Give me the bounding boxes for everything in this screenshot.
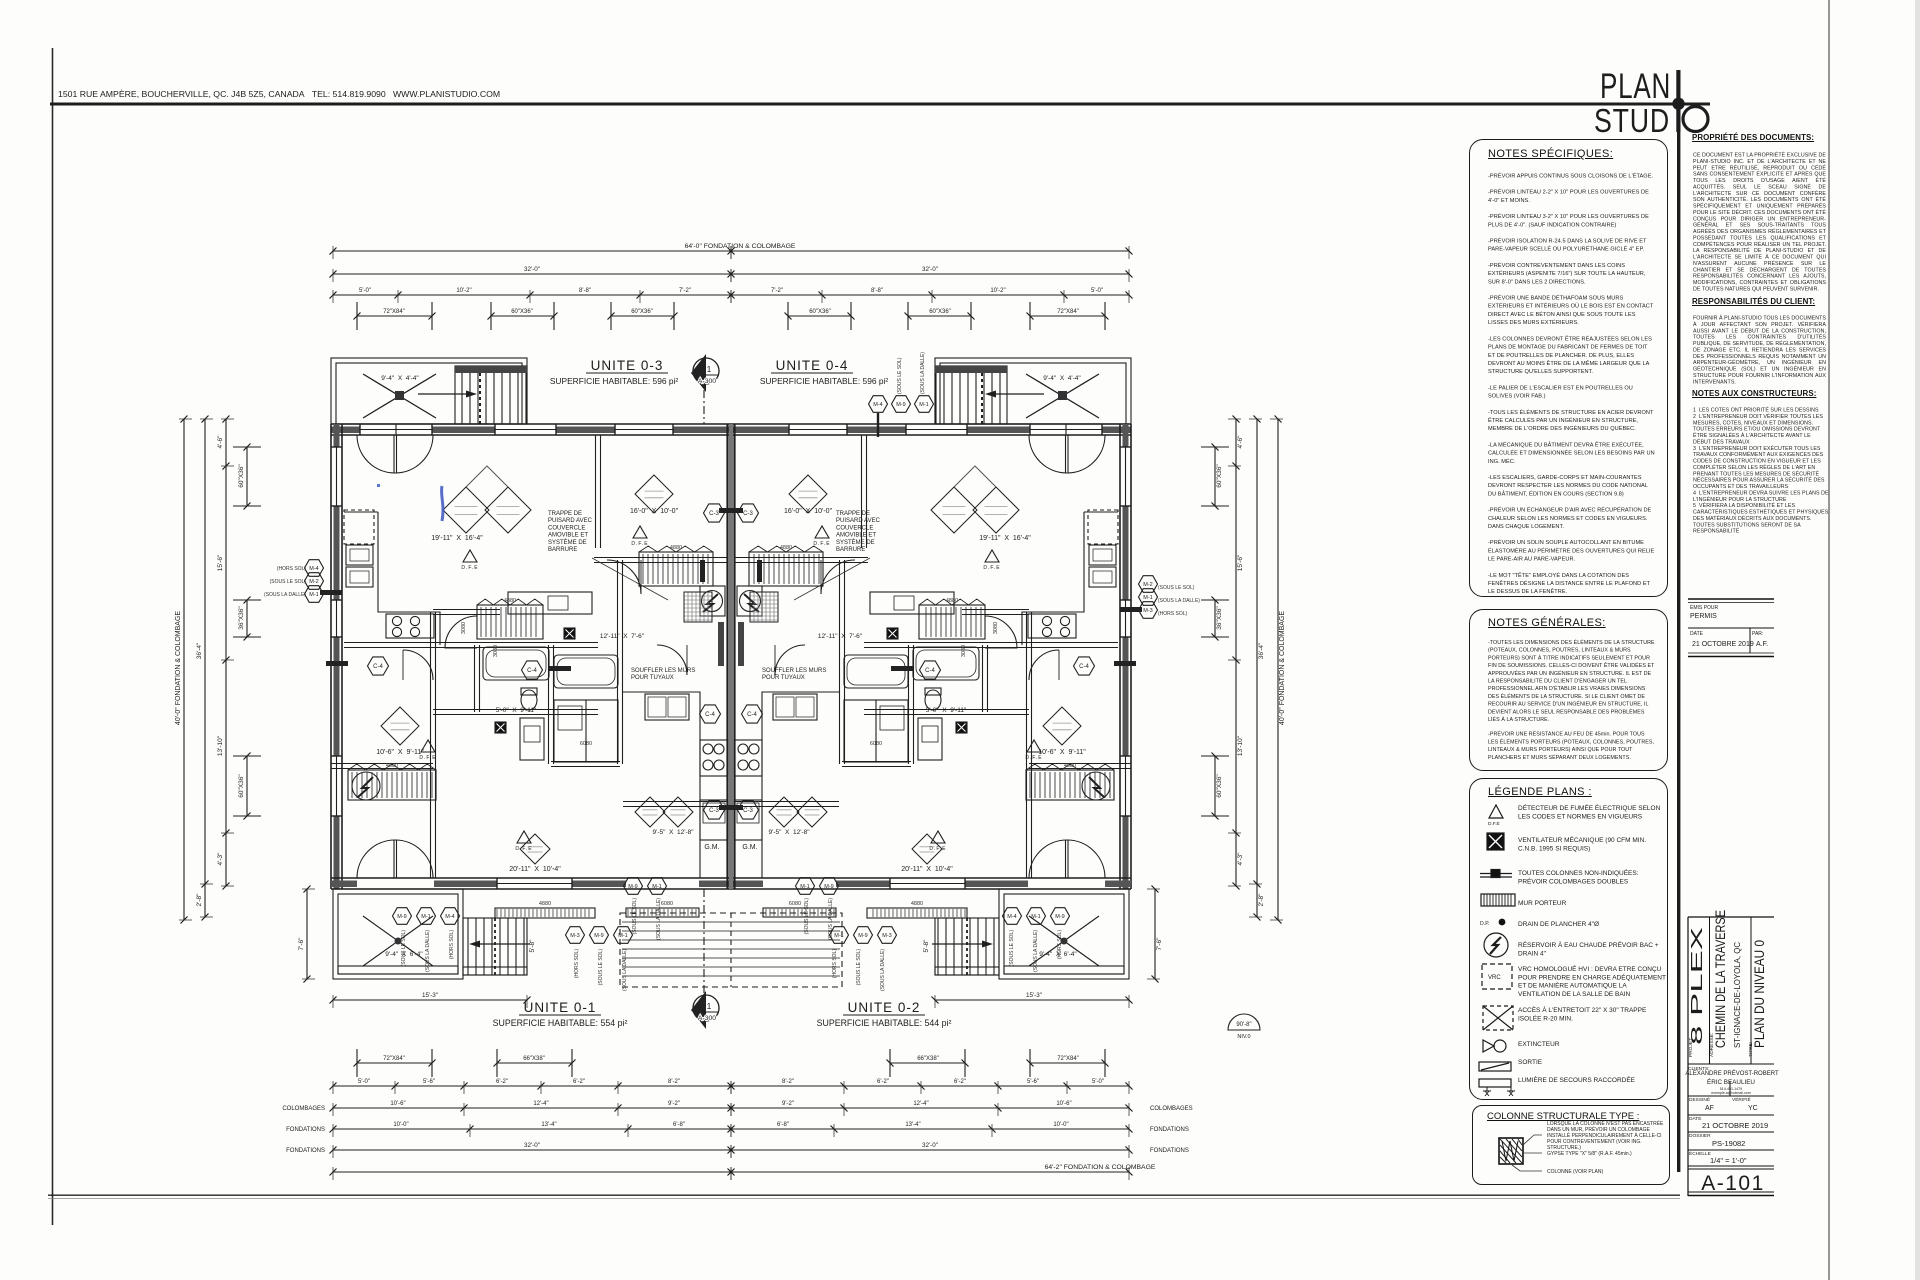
svg-text:64'-0" FONDATION & COLOMBAGE: 64'-0" FONDATION & COLOMBAGE (685, 243, 796, 250)
svg-text:M-9: M-9 (594, 933, 603, 939)
svg-text:60"X36": 60"X36" (1216, 774, 1223, 798)
svg-text:10'-0": 10'-0" (1053, 1122, 1068, 1128)
svg-text:6'-2": 6'-2" (496, 1079, 508, 1085)
svg-text:(SOUS LA DALLE): (SOUS LA DALLE) (828, 898, 834, 940)
svg-text:8'-8": 8'-8" (579, 288, 591, 294)
svg-text:20'-11" X 10'-4": 20'-11" X 10'-4" (509, 866, 561, 873)
svg-text:(SOUS LE SOL): (SOUS LE SOL) (856, 949, 862, 986)
svg-text:72"X84": 72"X84" (383, 1056, 405, 1062)
svg-text:19'-11" X 16'-4": 19'-11" X 16'-4" (979, 535, 1031, 542)
svg-text:SYSTÈME DE: SYSTÈME DE (836, 539, 875, 546)
svg-text:10'-6": 10'-6" (390, 1101, 405, 1107)
svg-text:72"X84": 72"X84" (1057, 309, 1079, 315)
svg-text:(HORS SOL): (HORS SOL) (449, 930, 455, 960)
svg-text:SOUFFLER LES MURS: SOUFFLER LES MURS (631, 668, 695, 674)
svg-text:(SOUS LA DALLE): (SOUS LA DALLE) (920, 352, 926, 394)
svg-text:UNITE 0-4: UNITE 0-4 (776, 358, 849, 373)
svg-text:(SOUS LA DALLE): (SOUS LA DALLE) (425, 930, 431, 972)
svg-text:(SOUS LA DALLE): (SOUS LA DALLE) (1033, 930, 1039, 972)
svg-text:SUPERFICIE HABITABLE: 596 pi²: SUPERFICIE HABITABLE: 596 pi² (760, 376, 889, 386)
svg-text:36"X36": 36"X36" (1216, 606, 1223, 630)
svg-text:ST-IGNACE-DE-LOYOLA, QC: ST-IGNACE-DE-LOYOLA, QC (1733, 942, 1742, 1048)
svg-text:M-1: M-1 (652, 884, 661, 890)
svg-text:13'-10": 13'-10" (1237, 735, 1244, 756)
svg-text:AMOVIBLE ET: AMOVIBLE ET (548, 533, 588, 539)
svg-text:13'-4": 13'-4" (541, 1122, 556, 1128)
svg-text:4'-3": 4'-3" (1237, 852, 1244, 866)
svg-text:C-3: C-3 (709, 511, 719, 517)
svg-text:15'-3": 15'-3" (422, 992, 438, 999)
svg-text:(SOUS LA DALLE): (SOUS LA DALLE) (1158, 598, 1200, 604)
svg-text:(SOUS LA DALLE): (SOUS LA DALLE) (622, 949, 628, 991)
svg-text:13'-4": 13'-4" (905, 1122, 920, 1128)
svg-text:9'-5" X 12'-8": 9'-5" X 12'-8" (768, 829, 810, 836)
svg-text:C-4: C-4 (1079, 664, 1089, 670)
svg-text:10'-2": 10'-2" (456, 288, 471, 294)
svg-text:M-1: M-1 (1143, 595, 1152, 601)
svg-text:ALEXANDRE PRÉVOST-ROBERT: ALEXANDRE PRÉVOST-ROBERT (1685, 1070, 1779, 1077)
svg-text:12'-11" X 7'-6": 12'-11" X 7'-6" (600, 633, 645, 640)
svg-text:YC: YC (1748, 1105, 1758, 1112)
svg-text:60"X36": 60"X36" (238, 464, 245, 488)
svg-text:(HORS SOL): (HORS SOL) (1057, 930, 1063, 960)
svg-text:21 OCTOBRE 2019: 21 OCTOBRE 2019 (1702, 1121, 1768, 1130)
svg-text:16'-0" X 10'-0": 16'-0" X 10'-0" (630, 508, 679, 515)
svg-text:60"X36": 60"X36" (238, 774, 245, 798)
svg-text:G.M.: G.M. (742, 844, 757, 851)
svg-text:1: 1 (707, 1001, 712, 1011)
svg-text:32'-0": 32'-0" (524, 266, 540, 273)
svg-text:C-3: C-3 (743, 808, 753, 814)
svg-text:60"X36": 60"X36" (631, 309, 653, 315)
svg-text:M-9: M-9 (628, 884, 637, 890)
svg-text:13'-10": 13'-10" (217, 735, 224, 756)
svg-text:FONDATIONS: FONDATIONS (1150, 1148, 1189, 1154)
svg-text:D.F.E: D.F.E (419, 755, 436, 761)
svg-text:A-101: A-101 (1701, 1172, 1765, 1195)
svg-text:DESSINÉ: DESSINÉ (1689, 1096, 1710, 1103)
svg-text:21 OCTOBRE 2019: 21 OCTOBRE 2019 (1692, 641, 1754, 648)
svg-text:(SOUS LE SOL): (SOUS LE SOL) (1009, 930, 1015, 967)
svg-text:4'-6": 4'-6" (217, 435, 224, 449)
svg-text:5'-6": 5'-6" (1027, 1079, 1039, 1085)
svg-text:12'-4": 12'-4" (913, 1101, 928, 1107)
svg-text:COLOMBAGES: COLOMBAGES (282, 1106, 325, 1112)
svg-text:COUVERCLE: COUVERCLE (836, 525, 873, 531)
svg-text:SOUFFLER LES MURS: SOUFFLER LES MURS (762, 668, 826, 674)
svg-text:19'-11" X 16'-4": 19'-11" X 16'-4" (431, 535, 483, 542)
svg-text:SUPERFICIE HABITABLE: 544 pi²: SUPERFICIE HABITABLE: 544 pi² (817, 1018, 952, 1028)
svg-text:COLOMBAGES: COLOMBAGES (1150, 1106, 1193, 1112)
svg-text:PAR:: PAR: (1752, 631, 1763, 637)
svg-text:72"X84": 72"X84" (383, 309, 405, 315)
svg-text:SUPERFICIE HABITABLE: 554 pi²: SUPERFICIE HABITABLE: 554 pi² (493, 1018, 628, 1028)
svg-text:M-9: M-9 (824, 884, 833, 890)
svg-text:6080: 6080 (870, 741, 882, 747)
svg-text:6'-2": 6'-2" (877, 1079, 889, 1085)
svg-text:SYSTÈME DE: SYSTÈME DE (548, 539, 587, 546)
svg-text:M-1: M-1 (421, 914, 430, 920)
svg-text:5'-6": 5'-6" (423, 1079, 435, 1085)
svg-text:A.F.: A.F. (1756, 641, 1768, 648)
svg-text:(SOUS LE SOL): (SOUS LE SOL) (804, 898, 810, 935)
svg-text:3080: 3080 (461, 622, 467, 634)
svg-text:D.F.E: D.F.E (983, 565, 1000, 571)
svg-text:6080: 6080 (789, 901, 801, 907)
svg-text:9'-4" X 4'-4": 9'-4" X 4'-4" (1043, 375, 1081, 382)
svg-text:NIV.0: NIV.0 (1237, 1034, 1250, 1040)
svg-text:16'-0" X 10'-0": 16'-0" X 10'-0" (784, 508, 833, 515)
svg-text:D.F.E: D.F.E (461, 565, 478, 571)
svg-text:A-300: A-300 (698, 378, 716, 385)
svg-text:DATE: DATE (1689, 1116, 1701, 1122)
svg-text:ÉCHELLE: ÉCHELLE (1689, 1150, 1711, 1157)
svg-text:C-4: C-4 (747, 712, 757, 718)
svg-text:60"X36": 60"X36" (929, 309, 951, 315)
svg-text:POUR TUYAUX: POUR TUYAUX (762, 675, 805, 681)
svg-text:3080: 3080 (493, 645, 499, 657)
svg-text:DOSSIER: DOSSIER (1689, 1133, 1711, 1139)
svg-text:9'-2": 9'-2" (668, 1101, 680, 1107)
svg-text:(SOUS LE SOL): (SOUS LE SOL) (897, 357, 903, 394)
svg-text:ÉRIC BEAULIEU: ÉRIC BEAULIEU (1707, 1077, 1755, 1086)
svg-text:(HORS SOL): (HORS SOL) (277, 566, 307, 572)
svg-text:M-4: M-4 (309, 566, 318, 572)
svg-text:4880: 4880 (386, 763, 398, 769)
svg-text:15'-6": 15'-6" (217, 554, 224, 571)
svg-text:D.F.E: D.F.E (813, 541, 830, 547)
svg-text:PERMIS: PERMIS (1690, 613, 1717, 620)
svg-text:M-9: M-9 (858, 933, 867, 939)
svg-text:7'-6": 7'-6" (1156, 937, 1163, 951)
svg-text:PLAN DU NIVEAU 0: PLAN DU NIVEAU 0 (1752, 940, 1767, 1048)
svg-text:M-1: M-1 (800, 884, 809, 890)
svg-text:POUR TUYAUX: POUR TUYAUX (631, 675, 674, 681)
svg-text:C-3: C-3 (743, 511, 753, 517)
svg-text:M-4: M-4 (1007, 914, 1016, 920)
svg-text:CHEMIN DE LA TRAVERSE: CHEMIN DE LA TRAVERSE (1713, 910, 1728, 1048)
svg-text:FONDATIONS: FONDATIONS (1150, 1127, 1189, 1133)
svg-text:12'-4": 12'-4" (533, 1101, 548, 1107)
svg-text:10'-6" X 9'-11": 10'-6" X 9'-11" (376, 749, 424, 756)
svg-text:M-9: M-9 (1055, 914, 1064, 920)
svg-text:10'-6": 10'-6" (1056, 1101, 1071, 1107)
svg-text:90'-8": 90'-8" (1236, 1022, 1251, 1028)
svg-text:VÉRIFIÉ: VÉRIFIÉ (1732, 1096, 1751, 1103)
svg-text:10'-6" X 9'-11": 10'-6" X 9'-11" (1038, 749, 1086, 756)
svg-text:TRAPPE DE: TRAPPE DE (548, 511, 582, 517)
svg-text:(SOUS LE SOL): (SOUS LE SOL) (632, 898, 638, 935)
svg-text:(SOUS LE SOL): (SOUS LE SOL) (401, 930, 407, 967)
svg-text:3080: 3080 (961, 645, 967, 657)
svg-text:60"X36": 60"X36" (1216, 464, 1223, 488)
svg-text:6080: 6080 (580, 741, 592, 747)
svg-text:9'-2": 9'-2" (782, 1101, 794, 1107)
svg-text:20'-11" X 10'-4": 20'-11" X 10'-4" (901, 866, 953, 873)
svg-text:M-4: M-4 (873, 402, 882, 408)
svg-text:6'-2": 6'-2" (954, 1079, 966, 1085)
svg-text:D.F.E: D.F.E (1488, 821, 1500, 827)
svg-text:6'-8": 6'-8" (777, 1122, 789, 1128)
svg-text:D.F.E: D.F.E (1025, 755, 1042, 761)
svg-text:TRAPPE DE: TRAPPE DE (836, 511, 870, 517)
svg-text:DATE: DATE (1690, 631, 1704, 637)
svg-text:5'-8": 5'-8" (529, 939, 536, 953)
svg-text:(HORS SOL): (HORS SOL) (1158, 611, 1188, 617)
svg-text:72"X84": 72"X84" (1057, 1056, 1079, 1062)
svg-text:8 PLEX: 8 PLEX (1689, 926, 1706, 1045)
svg-text:5'-0": 5'-0" (359, 288, 371, 294)
svg-text:36'-4": 36'-4" (196, 642, 203, 659)
svg-text:(HORS SOL): (HORS SOL) (574, 949, 580, 979)
svg-text:A-300: A-300 (698, 1015, 716, 1022)
svg-text:5'-0": 5'-0" (1091, 288, 1103, 294)
svg-text:6'-8": 6'-8" (673, 1122, 685, 1128)
svg-text:4880: 4880 (780, 545, 792, 551)
svg-text:FONDATIONS: FONDATIONS (286, 1148, 325, 1154)
svg-text:COUVERCLE: COUVERCLE (548, 525, 585, 531)
svg-text:C-4: C-4 (373, 664, 383, 670)
svg-text:(SOUS LE SOL): (SOUS LE SOL) (1158, 585, 1195, 591)
svg-text:4880: 4880 (1064, 763, 1076, 769)
svg-text:M-1: M-1 (309, 592, 318, 598)
svg-text:ÉMIS POUR: ÉMIS POUR (1690, 604, 1718, 611)
svg-text:5'-0" X 9'-11": 5'-0" X 9'-11" (496, 707, 537, 714)
svg-text:D.F.E: D.F.E (631, 541, 648, 547)
svg-text:D.P.: D.P. (1480, 921, 1489, 927)
svg-text:12'-11" X 7'-6": 12'-11" X 7'-6" (818, 633, 863, 640)
svg-text:2'-8": 2'-8" (196, 893, 203, 907)
svg-text:M-3: M-3 (1143, 608, 1152, 614)
svg-text:UNITE 0-1: UNITE 0-1 (524, 1000, 597, 1015)
svg-text:M-9: M-9 (397, 914, 406, 920)
svg-text:PUISARD AVEC: PUISARD AVEC (548, 518, 593, 524)
svg-text:M-2: M-2 (309, 579, 318, 585)
svg-text:9'-4" X 4'-4": 9'-4" X 4'-4" (381, 375, 419, 382)
svg-text:exemple.a@hotmail.com: exemple.a@hotmail.com (1711, 1091, 1751, 1095)
svg-text:32'-0": 32'-0" (922, 1142, 938, 1149)
svg-text:5'-0": 5'-0" (358, 1079, 370, 1085)
svg-text:(HORS SOL): (HORS SOL) (832, 949, 838, 979)
svg-text:M-3: M-3 (570, 933, 579, 939)
svg-text:1/4" = 1'-0": 1/4" = 1'-0" (1710, 1156, 1747, 1165)
svg-text:15'-6": 15'-6" (1237, 554, 1244, 571)
svg-text:4'-3": 4'-3" (217, 852, 224, 866)
svg-text:M-1: M-1 (919, 402, 928, 408)
svg-text:4'-6": 4'-6" (1237, 435, 1244, 449)
svg-text:3080: 3080 (993, 622, 999, 634)
svg-text:UNITE 0-2: UNITE 0-2 (848, 1000, 921, 1015)
svg-text:7'-6": 7'-6" (298, 937, 305, 951)
svg-text:(SOUS LE SOL): (SOUS LE SOL) (598, 949, 604, 986)
svg-text:60"X36": 60"X36" (511, 309, 533, 315)
svg-text:4880: 4880 (504, 598, 516, 604)
svg-text:C-4: C-4 (925, 668, 935, 674)
svg-text:60"X36": 60"X36" (809, 309, 831, 315)
svg-text:VRC: VRC (1488, 975, 1501, 981)
svg-text:4880: 4880 (670, 545, 682, 551)
svg-text:6080: 6080 (661, 901, 673, 907)
svg-text:36"X36": 36"X36" (238, 606, 245, 630)
svg-text:64'-2" FONDATION & COLOMBAGE: 64'-2" FONDATION & COLOMBAGE (1045, 1164, 1156, 1171)
svg-text:4880: 4880 (911, 901, 923, 907)
svg-text:C-4: C-4 (705, 712, 715, 718)
svg-text:M-4: M-4 (445, 914, 454, 920)
svg-text:PROJET:: PROJET: (1688, 1037, 1694, 1057)
svg-text:BARRURE: BARRURE (836, 547, 865, 553)
svg-text:G.M.: G.M. (704, 844, 719, 851)
svg-text:32'-0": 32'-0" (524, 1142, 540, 1149)
svg-text:M-1: M-1 (834, 933, 843, 939)
svg-text:10'-2": 10'-2" (990, 288, 1005, 294)
svg-text:15'-3": 15'-3" (1026, 992, 1042, 999)
svg-text:7'-2": 7'-2" (771, 288, 783, 294)
svg-text:40'-0" FONDATION & COLOMBAGE: 40'-0" FONDATION & COLOMBAGE (175, 611, 182, 725)
svg-text:C-3: C-3 (709, 808, 719, 814)
svg-text:32'-0": 32'-0" (922, 266, 938, 273)
svg-text:FONDATIONS: FONDATIONS (286, 1127, 325, 1133)
svg-text:8'-2": 8'-2" (782, 1079, 794, 1085)
svg-text:M-1: M-1 (618, 933, 627, 939)
svg-text:(SOUS LA DALLE): (SOUS LA DALLE) (880, 949, 886, 991)
svg-text:AMOVIBLE ET: AMOVIBLE ET (836, 533, 876, 539)
svg-text:8'-2": 8'-2" (668, 1079, 680, 1085)
svg-text:5'-8": 5'-8" (923, 939, 930, 953)
svg-text:66"X38": 66"X38" (917, 1056, 939, 1062)
svg-text:7'-2": 7'-2" (679, 288, 691, 294)
svg-text:66"X38": 66"X38" (523, 1056, 545, 1062)
svg-text:9'-5" X 12'-8": 9'-5" X 12'-8" (652, 829, 694, 836)
svg-text:6'-2": 6'-2" (573, 1079, 585, 1085)
svg-text:36'-4": 36'-4" (1258, 642, 1265, 659)
svg-text:C-4: C-4 (527, 668, 537, 674)
svg-text:SUPERFICIE HABITABLE: 596 pi²: SUPERFICIE HABITABLE: 596 pi² (550, 376, 679, 386)
svg-text:M-1: M-1 (1031, 914, 1040, 920)
svg-text:PS-19082: PS-19082 (1712, 1139, 1745, 1148)
svg-text:PUISARD AVEC: PUISARD AVEC (836, 518, 881, 524)
svg-text:4880: 4880 (946, 598, 958, 604)
svg-text:40'-0" FONDATION & COLOMBAGE: 40'-0" FONDATION & COLOMBAGE (1279, 611, 1286, 725)
svg-text:1: 1 (707, 364, 712, 374)
svg-text:BARRURE: BARRURE (548, 547, 577, 553)
svg-text:2'-8": 2'-8" (1258, 893, 1265, 907)
svg-text:(SOUS LA DALLE): (SOUS LA DALLE) (264, 592, 306, 598)
svg-text:4880: 4880 (539, 901, 551, 907)
svg-text:M-9: M-9 (896, 402, 905, 408)
svg-text:10'-0": 10'-0" (393, 1122, 408, 1128)
svg-text:(SOUS LE SOL): (SOUS LE SOL) (270, 579, 307, 585)
svg-text:M-2: M-2 (1143, 582, 1152, 588)
svg-text:AF: AF (1705, 1105, 1714, 1112)
svg-text:UNITE 0-3: UNITE 0-3 (591, 358, 664, 373)
svg-text:5'-0" X 9'-11": 5'-0" X 9'-11" (926, 707, 967, 714)
svg-text:M-3: M-3 (882, 933, 891, 939)
svg-text:8'-8": 8'-8" (871, 288, 883, 294)
svg-text:5'-0": 5'-0" (1092, 1079, 1104, 1085)
